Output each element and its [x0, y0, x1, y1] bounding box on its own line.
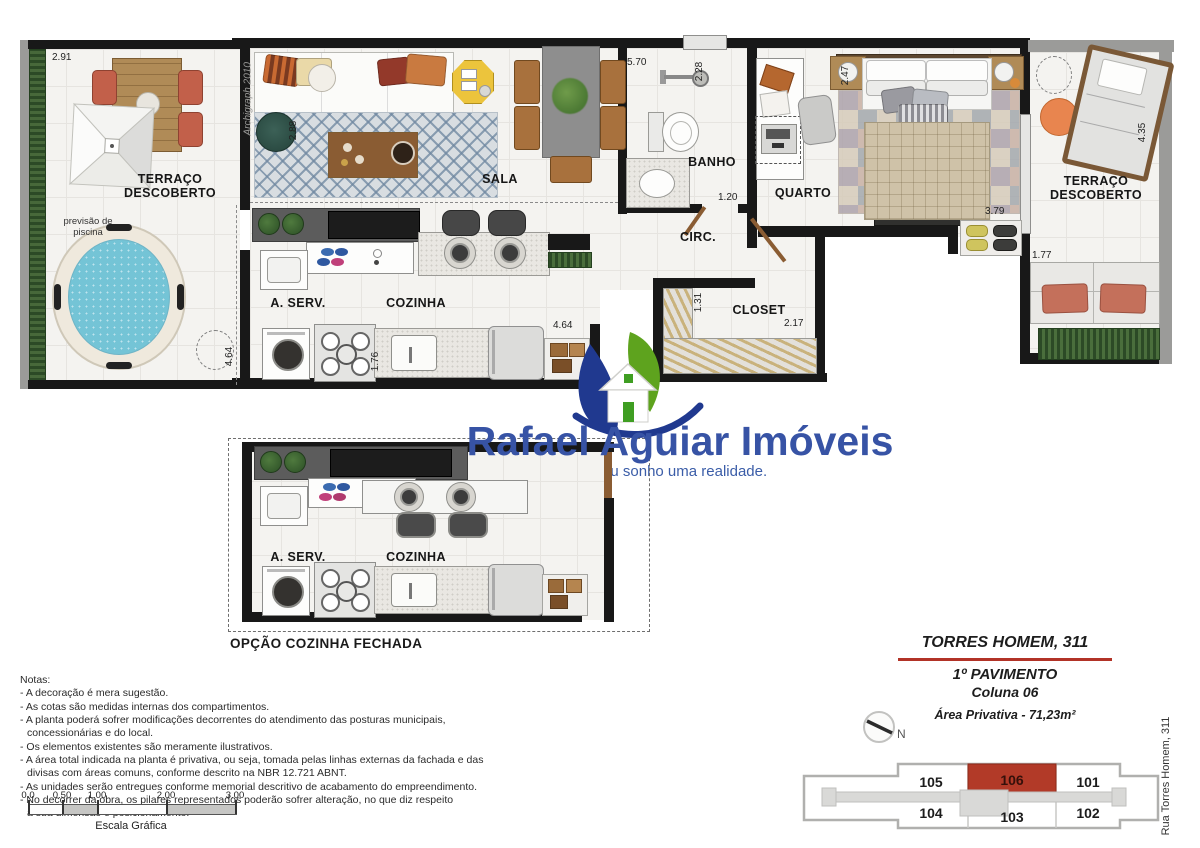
terrace-left-parapet	[20, 40, 29, 389]
kitchen-cabinet	[542, 574, 588, 616]
dim-terraco-left-depth: 4.64	[224, 347, 235, 366]
note-line: - A área total indicada na planta é priv…	[20, 754, 560, 767]
washer	[262, 566, 310, 616]
note-line: concessionárias e do local.	[20, 727, 560, 740]
note-line: divisas com áreas comuns, conforme descr…	[20, 767, 560, 780]
tv	[328, 211, 420, 239]
room-label-banho: BANHO	[682, 155, 742, 169]
desk-papers	[759, 90, 790, 118]
key-plan-unit: 103	[1000, 809, 1024, 825]
dim-closet-width: 2.17	[784, 318, 803, 329]
wall	[240, 250, 250, 388]
terrace-left-hedge	[29, 49, 46, 382]
shoe-rack	[960, 220, 1022, 256]
compass-north-label: N	[897, 727, 906, 741]
logo-house-window	[624, 374, 633, 383]
dining-chair	[550, 156, 592, 183]
pool-step	[106, 362, 132, 369]
wall-closet-top	[653, 278, 755, 288]
room-label-sala: SALA	[470, 172, 530, 186]
sink-counter	[374, 566, 492, 614]
scale-segment	[166, 804, 237, 815]
wall	[242, 442, 252, 622]
stove	[314, 324, 376, 382]
counter-herbs	[548, 252, 592, 268]
room-label-cozinha: COZINHA	[376, 296, 456, 310]
cooktop-burner	[444, 237, 476, 269]
bar-counter	[418, 232, 550, 276]
service-sink	[260, 250, 308, 290]
terrace-chair	[178, 112, 203, 147]
laptop-dashed-outline	[755, 116, 801, 164]
pot	[448, 512, 488, 538]
scale-tick	[166, 800, 168, 814]
wall-top-main	[232, 38, 1030, 48]
compass: N	[858, 704, 916, 752]
pool-note: previsão de piscina	[46, 216, 130, 239]
room-label-terraco-left: TERRAÇO DESCOBERTO	[108, 172, 232, 201]
notes-title: Notas:	[20, 674, 560, 687]
scale-bar-label: Escala Gráfica	[61, 820, 201, 832]
banho-vanity	[626, 158, 690, 208]
terrace-planter	[1038, 328, 1160, 360]
dim-banho-door: 1.20	[718, 192, 737, 203]
option-room-label-cozinha: COZINHA	[376, 550, 456, 564]
dim-terraco-left-width: 2.91	[52, 52, 71, 63]
pool-water	[68, 239, 170, 355]
dim-sala-depth: 2.88	[288, 121, 299, 140]
wall	[604, 498, 614, 622]
floor-plan-page: TERRAÇO DESCOBERTO SALA BANHO CIRC. QUAR…	[0, 0, 1200, 848]
coffee-table	[328, 132, 418, 178]
banho-window	[683, 35, 727, 50]
dining-chair	[600, 60, 626, 104]
bar-stool	[442, 210, 480, 236]
pool-step	[177, 284, 184, 310]
dining-chair	[514, 106, 540, 150]
scale-segment	[62, 804, 99, 815]
bed-blanket	[864, 122, 990, 220]
private-area-label: Área Privativa - 71,23m²	[880, 708, 1130, 722]
key-plan-corridor-cap	[822, 788, 836, 806]
pool-step	[54, 284, 61, 310]
bed-pillow	[926, 60, 988, 82]
stove	[314, 562, 376, 618]
key-plan-unit: 104	[919, 805, 943, 821]
washer	[262, 328, 310, 380]
dim-terraco-right-bench: 1.77	[1032, 250, 1051, 261]
dim-banho-depth: 2.28	[694, 62, 705, 81]
future-plant-dashed	[1036, 56, 1072, 94]
street-label: Rua Torres Homem, 311	[1160, 716, 1172, 836]
note-line: - As cotas são medidas internas dos comp…	[20, 701, 560, 714]
nightstand-item	[1010, 78, 1020, 88]
key-plan-unit: 106	[1000, 772, 1024, 788]
scale-segment	[28, 804, 64, 815]
column-label: Coluna 06	[880, 684, 1130, 700]
quarto-terrace-window	[1020, 114, 1031, 234]
bed-pillow	[866, 60, 926, 82]
round-cushion	[308, 64, 336, 92]
note-line: - A decoração é mera sugestão.	[20, 687, 560, 700]
counter-plant	[284, 451, 306, 473]
scale-tick	[97, 800, 99, 814]
dim-cozinha-sink: 1.76	[370, 352, 381, 371]
room-label-circ: CIRC.	[668, 230, 728, 244]
service-sink	[260, 486, 308, 526]
counter-plant	[282, 213, 304, 235]
counter-plant	[260, 451, 282, 473]
scale-tick	[62, 800, 64, 814]
key-plan-corridor-cap	[1112, 788, 1126, 806]
room-label-terraco-right: TERRAÇO DESCOBERTO	[1034, 174, 1158, 203]
key-plan-unit: 101	[1076, 774, 1100, 790]
note-line: - Os elementos existentes são meramente …	[20, 741, 560, 754]
terrace-chair	[178, 70, 203, 105]
terrace-boundary-dashed	[236, 205, 237, 385]
watermark: Archigraph 2010	[243, 54, 254, 136]
room-label-quarto: QUARTO	[768, 186, 838, 200]
room-label-closet: CLOSET	[724, 303, 794, 317]
exterior-cutout	[825, 237, 1020, 378]
cooktop-burner	[446, 482, 476, 512]
bench-cushion	[1042, 283, 1089, 314]
bar-stool	[488, 210, 526, 236]
counter-plant	[258, 213, 280, 235]
scale-segment	[97, 804, 168, 815]
dim-sala-width: 5.70	[627, 57, 646, 68]
fridge	[488, 326, 544, 380]
scale-tick	[28, 800, 30, 814]
scale-tick	[235, 800, 237, 814]
floor-label: 1º PAVIMENTO	[880, 666, 1130, 683]
dim-quarto-length: 3.79	[985, 206, 1004, 217]
key-plan: 105 106 101 104 103 102	[798, 750, 1164, 842]
table-plant	[552, 78, 588, 114]
sala-kitchen-dashed	[250, 202, 618, 203]
sofa-pillow	[405, 53, 447, 86]
dim-terraco-right-depth: 4.35	[1137, 123, 1148, 142]
range-hood	[548, 234, 590, 250]
desk-chair	[797, 94, 837, 146]
key-plan-unit: 102	[1076, 805, 1100, 821]
wall	[28, 380, 242, 389]
bench-cushion	[1100, 283, 1147, 314]
fridge	[488, 564, 544, 616]
wall	[28, 40, 242, 49]
sink-counter	[374, 328, 492, 378]
pot	[396, 512, 436, 538]
wall-quarto-bottom	[758, 226, 958, 237]
building-title: TORRES HOMEM, 311	[880, 634, 1130, 652]
kitchen-shelf	[306, 242, 414, 274]
agency-name: Rafael Aguiar Imóveis	[430, 418, 930, 465]
key-plan-unit: 105	[919, 774, 943, 790]
wall	[948, 226, 958, 254]
cooktop-burner	[394, 482, 424, 512]
dim-closet-depth: 1.31	[693, 293, 704, 312]
dim-quarto-width: 2.47	[840, 66, 851, 85]
option-counter	[362, 480, 528, 514]
pool-deck	[52, 224, 186, 370]
title-underline	[898, 658, 1112, 661]
dining-chair	[514, 60, 540, 104]
dining-chair	[600, 106, 626, 150]
shower-arm	[664, 75, 694, 79]
option-room-label-aserv: A. SERV.	[258, 550, 338, 564]
room-label-aserv: A. SERV.	[258, 296, 338, 310]
wall	[738, 204, 747, 213]
note-line: - A planta poderá sofrer modificações de…	[20, 714, 560, 727]
toilet-bowl	[662, 112, 699, 152]
cooktop-burner	[494, 237, 526, 269]
option-kitchen-label: OPÇÃO COZINHA FECHADA	[230, 636, 422, 651]
